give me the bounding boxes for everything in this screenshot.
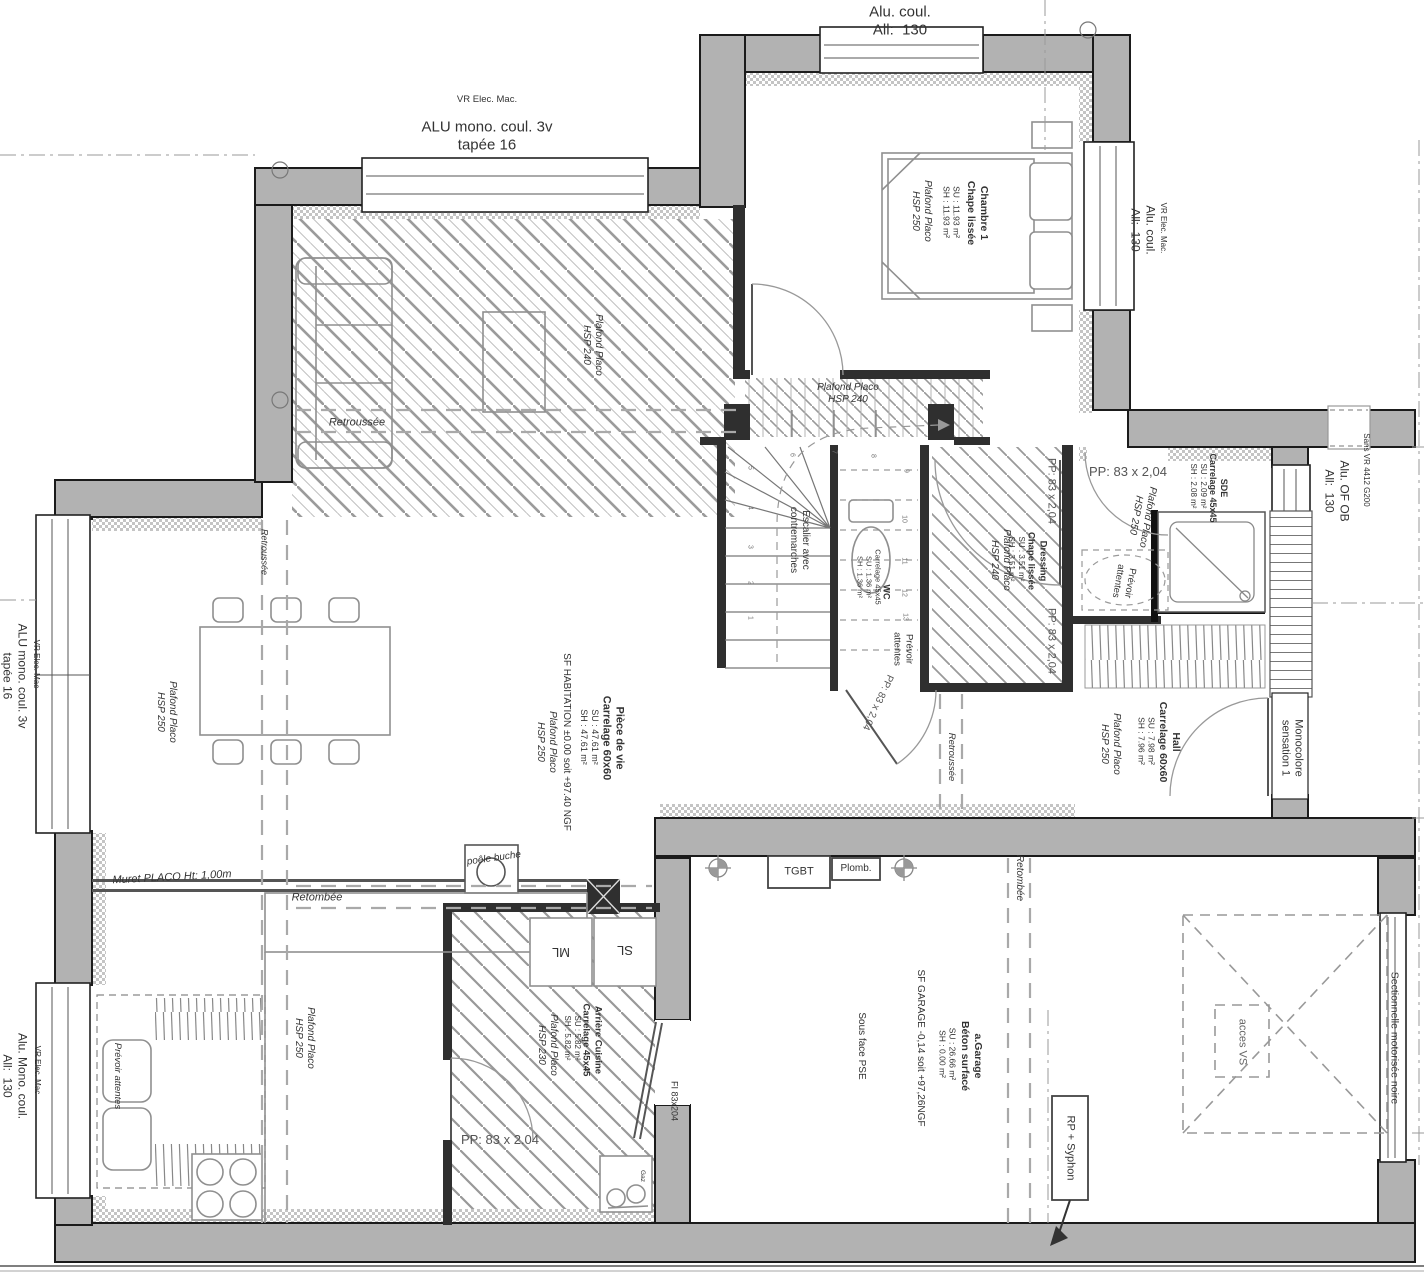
chair	[213, 740, 243, 764]
door-wc	[846, 690, 936, 764]
shower	[1158, 512, 1265, 612]
acces-vs	[1183, 915, 1387, 1133]
washing-machine	[530, 918, 592, 986]
garage-retombee-lines	[1008, 858, 1030, 1223]
tgbt-box	[768, 856, 830, 888]
entrance-door-opening	[1272, 693, 1308, 799]
window-porch-fixed	[1328, 406, 1370, 449]
window-hall-strip	[1270, 511, 1312, 697]
window-bedroom-right	[1084, 142, 1134, 310]
gaz-meter	[600, 1156, 652, 1212]
pdv-retroussee-lines	[940, 694, 962, 818]
window-living-top	[362, 158, 648, 212]
floor-plan-drawing	[0, 0, 1424, 1274]
living-hatch	[292, 219, 735, 517]
bed	[882, 122, 1072, 331]
door-bedroom	[752, 284, 843, 375]
sink-hatch	[155, 998, 263, 1040]
dining-table	[200, 598, 390, 764]
survey-point	[705, 855, 731, 881]
chair	[329, 740, 359, 764]
window-left-lower	[36, 983, 90, 1198]
stair-direction-line	[777, 425, 938, 662]
door-entrance	[1170, 698, 1268, 796]
nightstand	[1032, 122, 1072, 148]
nightstand	[1032, 305, 1072, 331]
plomb-box	[832, 858, 880, 880]
window-ofob	[1272, 465, 1310, 515]
survey-point	[891, 855, 917, 881]
chair	[213, 598, 243, 622]
pillow	[1030, 163, 1072, 220]
window-bedroom-top	[820, 27, 983, 73]
sink-basin	[103, 1108, 151, 1170]
garage-door	[1380, 913, 1406, 1162]
dryer	[594, 918, 656, 986]
hall-wardrobe	[1085, 625, 1265, 688]
shower-wall	[1151, 510, 1158, 622]
sink-basin	[103, 1040, 151, 1102]
chair	[329, 598, 359, 622]
window-left-big	[36, 515, 90, 833]
pillow	[1030, 232, 1072, 289]
floor-plan: Alu. coul. All: 130VR Elec. Mac.ALU mono…	[0, 0, 1424, 1274]
toilet	[849, 500, 893, 593]
hob	[192, 1154, 262, 1220]
dressing-hatch	[932, 447, 1062, 683]
